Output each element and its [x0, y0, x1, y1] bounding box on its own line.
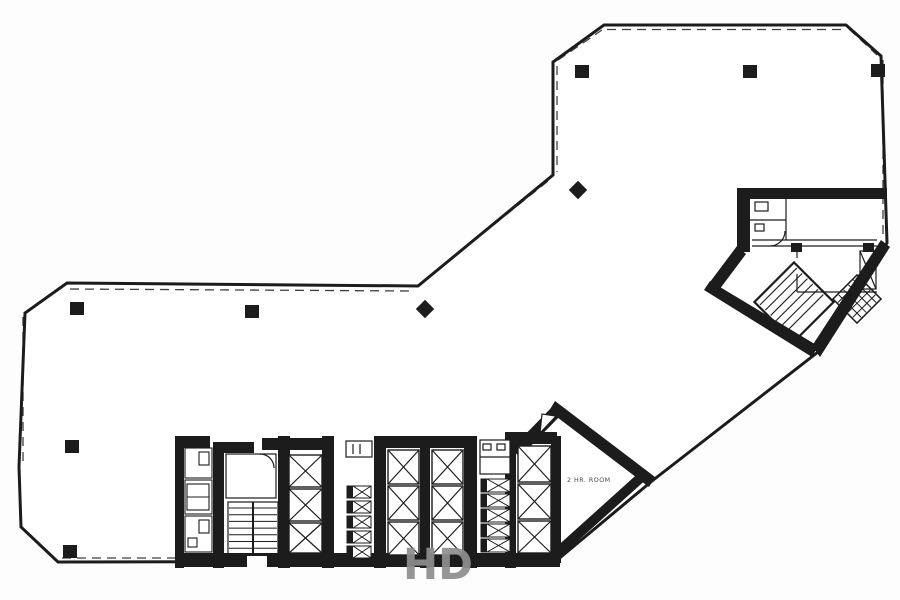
- duct-shaft-tab: [481, 479, 487, 492]
- elevator-shaft: [289, 523, 322, 553]
- structural-column: [65, 440, 79, 453]
- structural-column: [63, 545, 77, 558]
- elevator-shaft: [518, 521, 551, 553]
- elevator-shaft: [518, 446, 551, 482]
- fixture: [199, 520, 209, 533]
- duct-shaft: [347, 546, 371, 558]
- hd-watermark: HD: [403, 540, 473, 590]
- duct-shaft-tab: [347, 516, 353, 528]
- duct-shaft: [347, 486, 371, 498]
- structural-column: [245, 305, 259, 318]
- duct-shaft: [481, 479, 510, 492]
- duct-shaft: [481, 524, 510, 537]
- elevator-shaft: [432, 450, 463, 484]
- floor-plan-canvas: 2 HR. ROOM HD: [0, 0, 900, 600]
- elevator-shaft: [289, 489, 322, 521]
- structural-column: [575, 65, 589, 78]
- duct-shaft-tab: [347, 486, 353, 498]
- duct-shaft-tab: [347, 546, 353, 558]
- duct-shaft-tab: [481, 524, 487, 537]
- elevator-shaft: [388, 486, 419, 520]
- fixture: [188, 538, 197, 547]
- structural-column: [743, 65, 757, 78]
- floor-plan-svg: 2 HR. ROOM HD: [0, 0, 900, 600]
- duct-shaft: [481, 509, 510, 522]
- fixture: [199, 452, 209, 465]
- duct-shaft: [347, 531, 371, 543]
- elevator-shaft: [289, 455, 322, 487]
- structural-column: [871, 64, 885, 77]
- duct-shaft: [481, 539, 510, 552]
- duct-shaft-tab: [481, 509, 487, 522]
- elevator-shaft: [432, 486, 463, 520]
- duct-shaft: [347, 516, 371, 528]
- duct-shaft: [481, 494, 510, 507]
- stair-exit-opening: [247, 556, 267, 567]
- duct-shaft-tab: [481, 539, 487, 552]
- elevator-shaft: [518, 484, 551, 519]
- room-label: 2 HR. ROOM: [567, 477, 611, 484]
- duct-shaft-tab: [347, 501, 353, 513]
- duct-shaft-tab: [347, 531, 353, 543]
- structural-column: [70, 302, 84, 315]
- elevator-shaft: [388, 450, 419, 484]
- duct-shaft: [347, 501, 371, 513]
- restroom-block: [185, 448, 212, 552]
- duct-shaft-tab: [481, 494, 487, 507]
